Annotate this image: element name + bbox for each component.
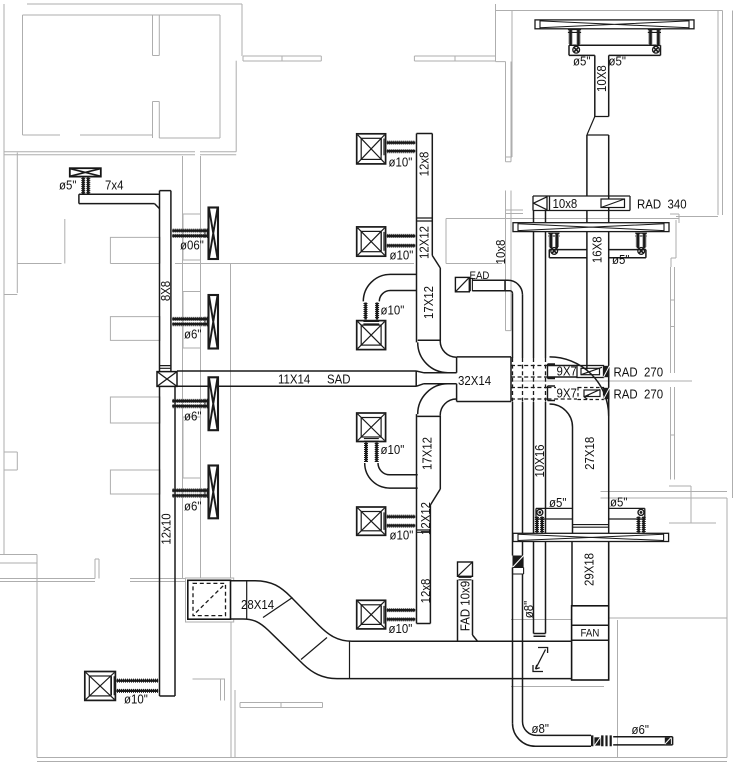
svg-text:RAD 340: RAD 340 [637,197,687,212]
svg-text:7x4: 7x4 [105,178,124,193]
svg-text:ø5": ø5" [609,54,626,69]
svg-text:17X12: 17X12 [421,286,436,319]
svg-text:12x8: 12x8 [418,578,433,603]
svg-text:ø6": ø6" [184,409,201,424]
svg-text:10X16: 10X16 [532,444,547,477]
svg-text:RAD 270: RAD 270 [614,387,664,402]
svg-text:ø06": ø06" [180,238,204,253]
svg-text:ø5": ø5" [573,54,590,69]
svg-text:RAD 270: RAD 270 [614,365,664,380]
svg-text:ø5": ø5" [549,495,566,510]
svg-text:ø10": ø10" [389,155,413,170]
svg-text:SAD: SAD [327,372,351,387]
svg-text:9X7: 9X7 [557,364,578,379]
svg-text:ø10": ø10" [381,442,405,457]
svg-text:10x8: 10x8 [494,239,509,264]
svg-text:ø10": ø10" [389,621,413,636]
svg-text:ø10": ø10" [124,692,148,707]
svg-text:ø6": ø6" [632,722,649,737]
svg-text:ø6": ø6" [184,499,201,514]
svg-text:17X12: 17X12 [420,437,435,470]
svg-text:ø10": ø10" [390,528,414,543]
svg-text:EAD: EAD [470,270,490,282]
svg-text:ø10": ø10" [381,303,405,318]
svg-text:9X7: 9X7 [557,386,578,401]
svg-text:ø8": ø8" [532,721,549,736]
svg-text:12x10: 12x10 [159,513,174,544]
svg-text:FAD 10x9: FAD 10x9 [458,581,473,631]
svg-text:11X14: 11X14 [278,372,310,387]
svg-text:12X12: 12X12 [417,226,432,259]
svg-text:FAN: FAN [581,628,600,640]
svg-text:28X14: 28X14 [241,597,274,612]
svg-text:ø5": ø5" [612,252,629,267]
svg-text:29X18: 29X18 [582,553,597,586]
svg-text:ø5": ø5" [610,495,627,510]
svg-text:10X8: 10X8 [594,65,609,92]
svg-text:ø5": ø5" [59,178,76,193]
svg-text:ø10": ø10" [390,248,414,263]
svg-text:16X8: 16X8 [590,236,605,263]
svg-text:12x8: 12x8 [417,151,432,176]
svg-text:32X14: 32X14 [458,373,491,388]
svg-text:27X18: 27X18 [583,437,598,470]
svg-text:12X12: 12X12 [418,502,433,535]
svg-text:10x8: 10x8 [553,196,578,211]
svg-text:8X8: 8X8 [158,281,173,302]
svg-text:ø6": ø6" [184,327,201,342]
